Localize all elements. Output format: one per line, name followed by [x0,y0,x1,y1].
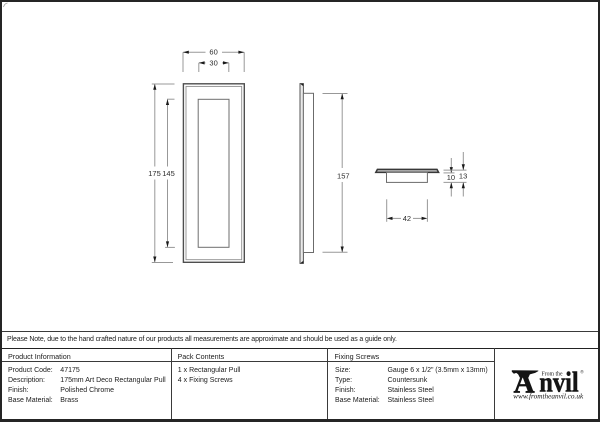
svg-text:145: 145 [162,169,175,178]
svg-text:30: 30 [209,58,217,67]
svg-text:13: 13 [459,172,467,181]
svg-text:42: 42 [403,214,411,223]
svg-text:175: 175 [148,169,161,178]
svg-text:157: 157 [337,171,350,180]
svg-text:60: 60 [209,48,217,57]
svg-text:10: 10 [447,173,455,182]
svg-text:www.fromtheanvil.co.uk: www.fromtheanvil.co.uk [513,392,584,400]
svg-text:®: ® [580,370,584,375]
